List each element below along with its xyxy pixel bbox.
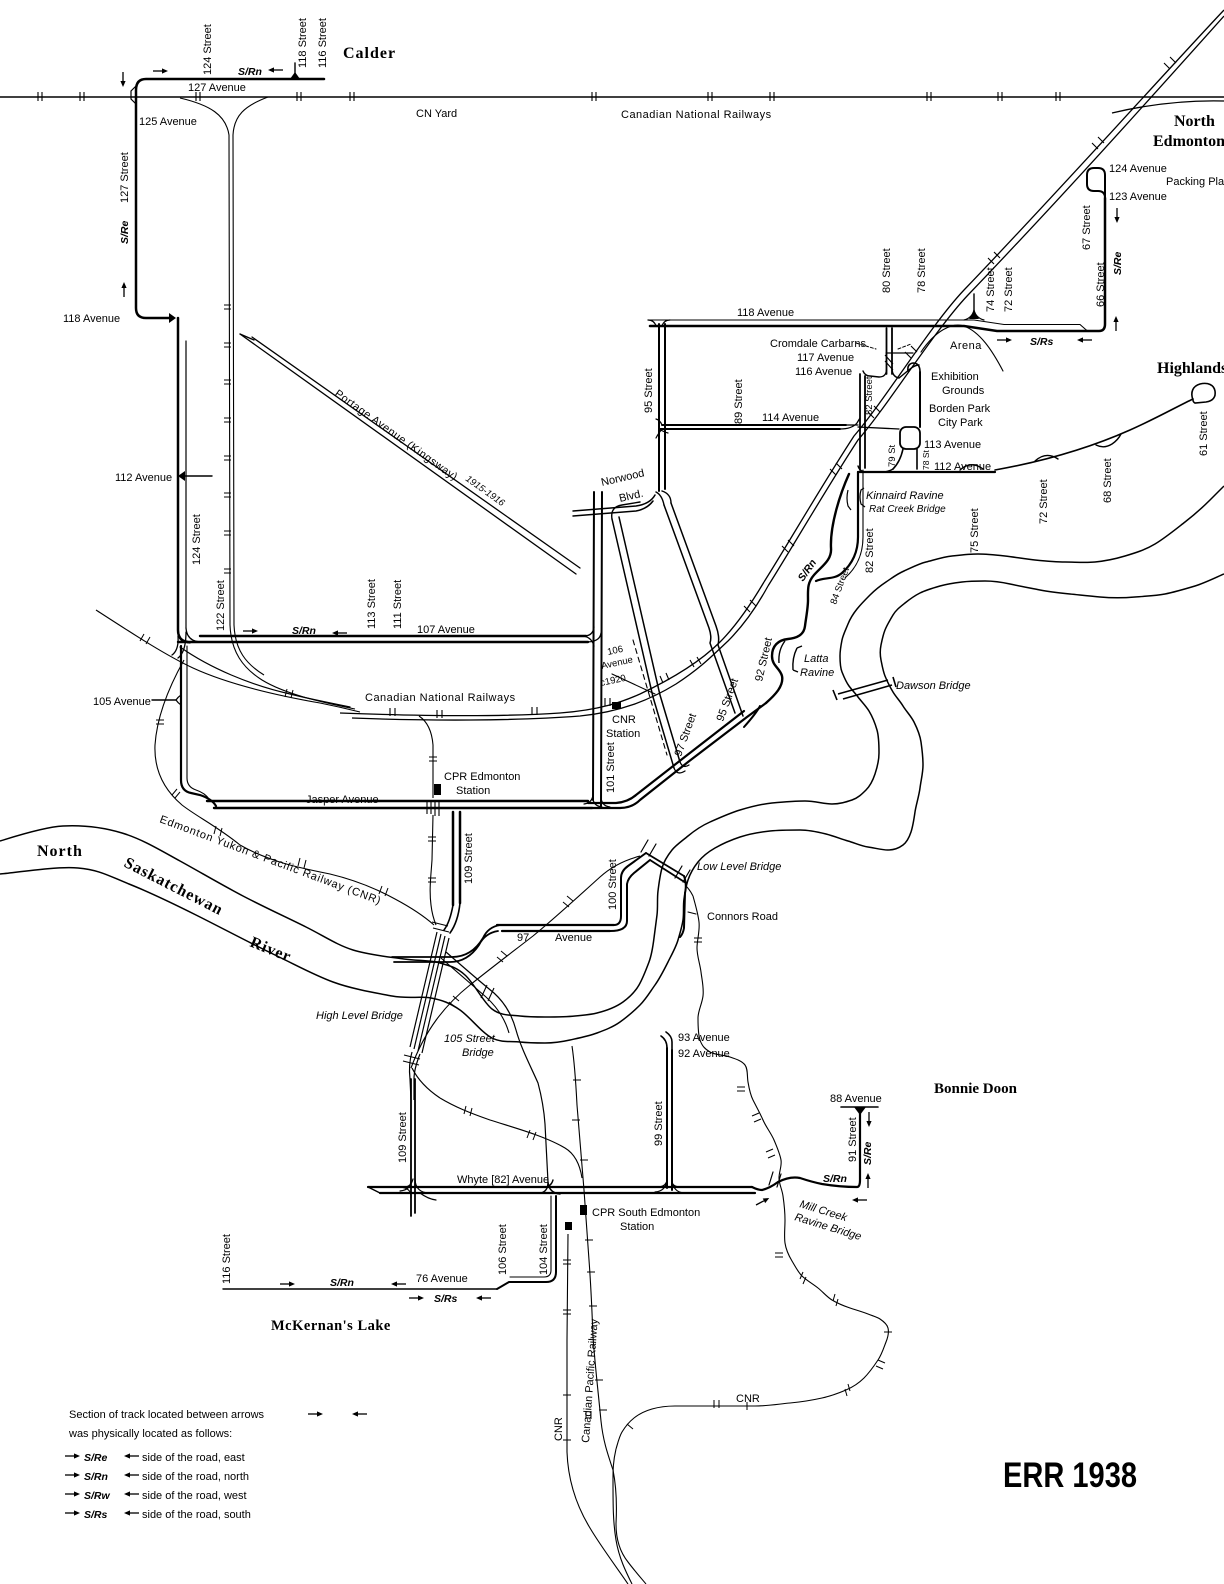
svg-text:79 St: 79 St bbox=[887, 444, 898, 467]
svg-text:Station: Station bbox=[620, 1221, 654, 1233]
svg-text:S/Rs: S/Rs bbox=[84, 1509, 108, 1521]
svg-text:114 Avenue: 114 Avenue bbox=[762, 412, 819, 424]
svg-text:Station: Station bbox=[456, 785, 490, 797]
svg-text:CNR: CNR bbox=[612, 714, 636, 726]
svg-text:61 Street: 61 Street bbox=[1198, 411, 1210, 456]
svg-text:North: North bbox=[37, 843, 83, 860]
svg-text:105 Street: 105 Street bbox=[444, 1033, 496, 1045]
svg-text:89 Street: 89 Street bbox=[733, 379, 745, 424]
svg-text:S/Rs: S/Rs bbox=[434, 1293, 458, 1305]
svg-text:CN Yard: CN Yard bbox=[416, 108, 457, 120]
svg-text:118 Street: 118 Street bbox=[297, 18, 309, 68]
svg-text:Arena: Arena bbox=[950, 340, 982, 352]
svg-text:Exhibition: Exhibition bbox=[931, 371, 979, 383]
svg-text:124 Avenue: 124 Avenue bbox=[1109, 163, 1167, 175]
svg-text:101 Street: 101 Street bbox=[605, 742, 617, 793]
svg-text:125 Avenue: 125 Avenue bbox=[139, 116, 197, 128]
svg-text:S/Rn: S/Rn bbox=[238, 66, 262, 78]
svg-text:S/Rn: S/Rn bbox=[330, 1277, 354, 1289]
svg-text:Station: Station bbox=[606, 728, 640, 740]
svg-text:97: 97 bbox=[517, 932, 529, 944]
svg-text:112 Avenue: 112 Avenue bbox=[115, 472, 172, 484]
svg-text:Whyte [82] Avenue: Whyte [82] Avenue bbox=[457, 1174, 549, 1186]
svg-text:Bonnie Doon: Bonnie Doon bbox=[934, 1081, 1018, 1097]
svg-text:side of the road, east: side of the road, east bbox=[142, 1452, 245, 1464]
svg-text:68 Street: 68 Street bbox=[1102, 458, 1114, 503]
svg-text:was physically located as foll: was physically located as follows: bbox=[68, 1428, 232, 1440]
svg-text:Canadian National Railways: Canadian National Railways bbox=[621, 109, 772, 121]
svg-text:100 Street: 100 Street bbox=[607, 859, 619, 910]
svg-text:107 Avenue: 107 Avenue bbox=[417, 624, 475, 636]
svg-text:Avenue: Avenue bbox=[555, 932, 592, 944]
svg-text:Rat Creek Bridge: Rat Creek Bridge bbox=[869, 504, 946, 515]
svg-text:78 Street: 78 Street bbox=[916, 248, 928, 293]
svg-text:82 Street: 82 Street bbox=[864, 376, 875, 415]
svg-text:116 Avenue: 116 Avenue bbox=[795, 366, 852, 378]
svg-text:Grounds: Grounds bbox=[942, 385, 985, 397]
svg-text:113 Street: 113 Street bbox=[366, 579, 378, 629]
svg-text:Borden Park: Borden Park bbox=[929, 403, 991, 415]
svg-text:Bridge: Bridge bbox=[462, 1047, 494, 1059]
svg-text:112 Avenue: 112 Avenue bbox=[934, 461, 991, 473]
svg-text:High Level Bridge: High Level Bridge bbox=[316, 1010, 403, 1022]
svg-text:116 Street: 116 Street bbox=[317, 18, 329, 68]
svg-text:76 Avenue: 76 Avenue bbox=[416, 1273, 468, 1285]
svg-text:ERR 1938: ERR 1938 bbox=[1003, 1456, 1137, 1495]
svg-text:Latta: Latta bbox=[804, 653, 828, 665]
svg-text:113 Avenue: 113 Avenue bbox=[924, 439, 981, 451]
svg-text:S/Rn: S/Rn bbox=[84, 1471, 108, 1483]
svg-text:S/Re: S/Re bbox=[862, 1141, 874, 1165]
svg-text:Highlands: Highlands bbox=[1157, 360, 1224, 377]
svg-text:side of the road, south: side of the road, south bbox=[142, 1509, 251, 1521]
svg-text:105 Avenue: 105 Avenue bbox=[93, 696, 151, 708]
svg-text:92 Avenue: 92 Avenue bbox=[678, 1048, 730, 1060]
svg-text:91 Street: 91 Street bbox=[847, 1117, 859, 1162]
svg-text:City Park: City Park bbox=[938, 417, 983, 429]
svg-text:S/Re: S/Re bbox=[1112, 251, 1124, 275]
svg-text:Connors Road: Connors Road bbox=[707, 911, 778, 923]
svg-text:Section of track located betwe: Section of track located between arrows bbox=[69, 1409, 265, 1421]
svg-text:Dawson Bridge: Dawson Bridge bbox=[896, 680, 971, 692]
svg-text:Packing Plant: Packing Plant bbox=[1166, 176, 1224, 188]
svg-text:66 Street: 66 Street bbox=[1095, 262, 1107, 307]
svg-text:127 Avenue: 127 Avenue bbox=[188, 82, 246, 94]
svg-text:99 Street: 99 Street bbox=[653, 1101, 665, 1146]
svg-text:124 Street: 124 Street bbox=[202, 24, 214, 75]
svg-text:88 Avenue: 88 Avenue bbox=[830, 1093, 882, 1105]
svg-text:Low Level Bridge: Low Level Bridge bbox=[697, 861, 781, 873]
svg-text:118 Avenue: 118 Avenue bbox=[737, 307, 794, 319]
svg-text:Cromdale Carbarns: Cromdale Carbarns bbox=[770, 338, 866, 350]
svg-text:72 Street: 72 Street bbox=[1003, 267, 1015, 312]
svg-text:S/Re: S/Re bbox=[119, 220, 131, 244]
svg-text:Kinnaird Ravine: Kinnaird Ravine bbox=[866, 490, 944, 502]
svg-text:111 Street: 111 Street bbox=[392, 580, 404, 629]
svg-text:CNR: CNR bbox=[553, 1417, 565, 1441]
svg-text:117 Avenue: 117 Avenue bbox=[797, 352, 854, 364]
svg-text:75 Street: 75 Street bbox=[969, 508, 981, 553]
svg-text:Jasper Avenue: Jasper Avenue bbox=[306, 794, 379, 806]
svg-text:Calder: Calder bbox=[343, 45, 396, 62]
svg-text:116 Street: 116 Street bbox=[221, 1234, 233, 1284]
svg-text:72 Street: 72 Street bbox=[1038, 479, 1050, 524]
svg-text:side of the road, north: side of the road, north bbox=[142, 1471, 249, 1483]
svg-text:95 Street: 95 Street bbox=[643, 368, 655, 413]
svg-text:Ravine: Ravine bbox=[800, 667, 834, 679]
svg-text:S/Rn: S/Rn bbox=[823, 1173, 847, 1185]
svg-text:82 Street: 82 Street bbox=[864, 528, 876, 573]
svg-text:106 Street: 106 Street bbox=[497, 1224, 509, 1275]
svg-text:S/Rw: S/Rw bbox=[84, 1490, 111, 1502]
svg-text:67 Street: 67 Street bbox=[1081, 205, 1093, 250]
svg-text:CPR Edmonton: CPR Edmonton bbox=[444, 771, 520, 783]
svg-text:122 Street: 122 Street bbox=[215, 580, 227, 631]
svg-text:124 Street: 124 Street bbox=[191, 514, 203, 565]
svg-text:109 Street: 109 Street bbox=[463, 833, 475, 884]
svg-text:104 Street: 104 Street bbox=[538, 1224, 550, 1275]
svg-text:80 Street: 80 Street bbox=[881, 248, 893, 293]
svg-text:74 Street: 74 Street bbox=[985, 267, 997, 312]
svg-text:123 Avenue: 123 Avenue bbox=[1109, 191, 1167, 203]
svg-text:CPR South Edmonton: CPR South Edmonton bbox=[592, 1207, 700, 1219]
svg-text:North: North bbox=[1174, 113, 1215, 130]
svg-text:Canadian National Railways: Canadian National Railways bbox=[365, 692, 516, 704]
svg-text:78 St: 78 St bbox=[921, 450, 931, 470]
svg-text:109 Street: 109 Street bbox=[397, 1112, 409, 1163]
svg-text:93 Avenue: 93 Avenue bbox=[678, 1032, 730, 1044]
svg-text:S/Re: S/Re bbox=[84, 1452, 108, 1464]
svg-text:McKernan's Lake: McKernan's Lake bbox=[271, 1318, 391, 1334]
svg-text:S/Rs: S/Rs bbox=[1030, 336, 1054, 348]
svg-text:118 Avenue: 118 Avenue bbox=[63, 313, 120, 325]
svg-text:CNR: CNR bbox=[736, 1393, 760, 1405]
svg-text:S/Rn: S/Rn bbox=[292, 625, 316, 637]
svg-text:side of the road, west: side of the road, west bbox=[142, 1490, 247, 1502]
svg-text:127 Street: 127 Street bbox=[119, 152, 131, 203]
svg-text:Edmonton: Edmonton bbox=[1153, 133, 1224, 150]
